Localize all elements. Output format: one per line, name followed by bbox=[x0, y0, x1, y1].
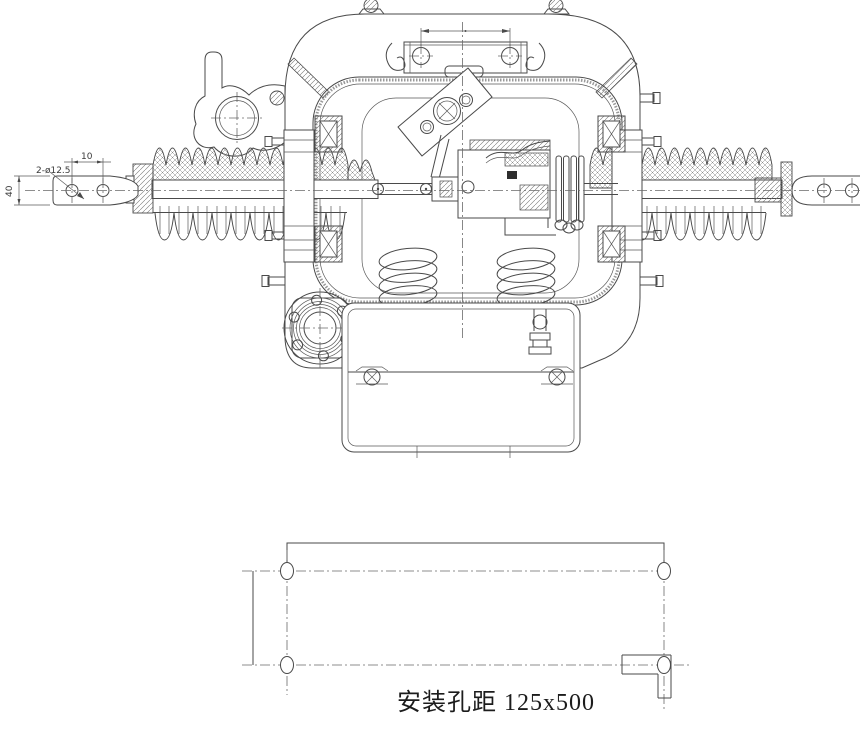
opening-springs bbox=[378, 246, 556, 309]
mechanism-box bbox=[342, 303, 580, 458]
dim-hole-spacing-label: 10 bbox=[81, 152, 93, 162]
technical-drawing: 2-ø12.5 10 40 安装孔距 125x500 bbox=[0, 0, 860, 736]
operating-mechanism bbox=[373, 68, 619, 235]
drawing-canvas: 2-ø12.5 10 40 安装孔距 125x500 bbox=[0, 0, 860, 736]
right-end-fitting bbox=[755, 178, 781, 202]
mounting-plan-view bbox=[242, 543, 690, 712]
lifting-hook-left bbox=[386, 43, 405, 70]
ear-bolt bbox=[270, 91, 284, 105]
mounting-hole bbox=[281, 563, 294, 580]
lifting-hook-right bbox=[526, 43, 545, 70]
left-conductor-rod bbox=[152, 180, 378, 199]
top-bolts bbox=[359, 0, 569, 14]
spring-left bbox=[378, 246, 438, 309]
left-terminal-pad bbox=[50, 172, 138, 205]
interrupter-assembly bbox=[458, 140, 556, 235]
dim-terminal-holes-label: 2-ø12.5 bbox=[36, 166, 71, 176]
dim-terminal-width-label: 40 bbox=[5, 185, 15, 197]
right-end-flange bbox=[781, 162, 792, 216]
spring-right bbox=[496, 246, 556, 309]
plan-caption: 安装孔距 125x500 bbox=[397, 689, 595, 716]
mounting-hole bbox=[281, 657, 294, 674]
mounting-hole bbox=[658, 563, 671, 580]
lifting-ear-bracket bbox=[194, 52, 285, 156]
mounting-hole bbox=[658, 657, 671, 674]
stem-bellows-boot bbox=[555, 156, 584, 233]
